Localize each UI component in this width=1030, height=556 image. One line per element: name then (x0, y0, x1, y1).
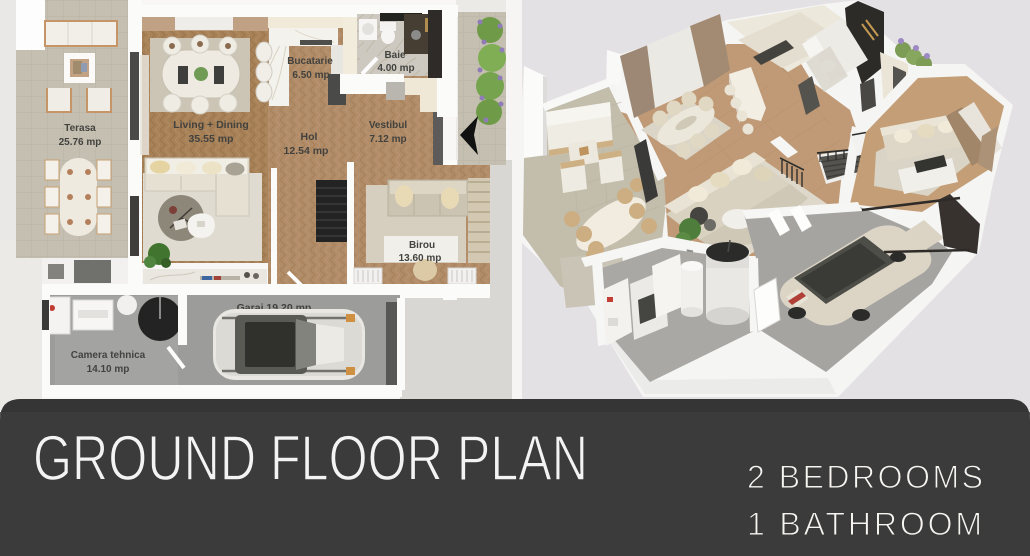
svg-text:Birou: Birou (409, 240, 435, 251)
svg-text:14.10 mp: 14.10 mp (87, 364, 130, 375)
svg-text:Bucatarie: Bucatarie (287, 56, 333, 67)
svg-text:4.00 mp: 4.00 mp (377, 63, 414, 74)
svg-text:1 BATHROOM: 1 BATHROOM (747, 506, 982, 542)
svg-text:Baie: Baie (384, 50, 406, 61)
svg-text:12.54 mp: 12.54 mp (284, 145, 329, 157)
svg-text:Terasa: Terasa (64, 123, 96, 134)
svg-text:Vestibul: Vestibul (369, 120, 408, 131)
svg-text:Hol: Hol (301, 131, 318, 143)
svg-text:7.12 mp: 7.12 mp (369, 134, 406, 145)
svg-text:35.55 mp: 35.55 mp (189, 133, 234, 145)
svg-text:Camera tehnica: Camera tehnica (71, 350, 146, 361)
svg-text:25.76 mp: 25.76 mp (59, 137, 102, 148)
svg-text:13.60 mp: 13.60 mp (399, 253, 442, 264)
svg-text:Living + Dining: Living + Dining (173, 119, 249, 131)
svg-text:2 BEDROOMS: 2 BEDROOMS (747, 459, 983, 495)
svg-text:6.50 mp: 6.50 mp (292, 70, 329, 81)
svg-text:GROUND FLOOR PLAN: GROUND FLOOR PLAN (33, 422, 588, 494)
